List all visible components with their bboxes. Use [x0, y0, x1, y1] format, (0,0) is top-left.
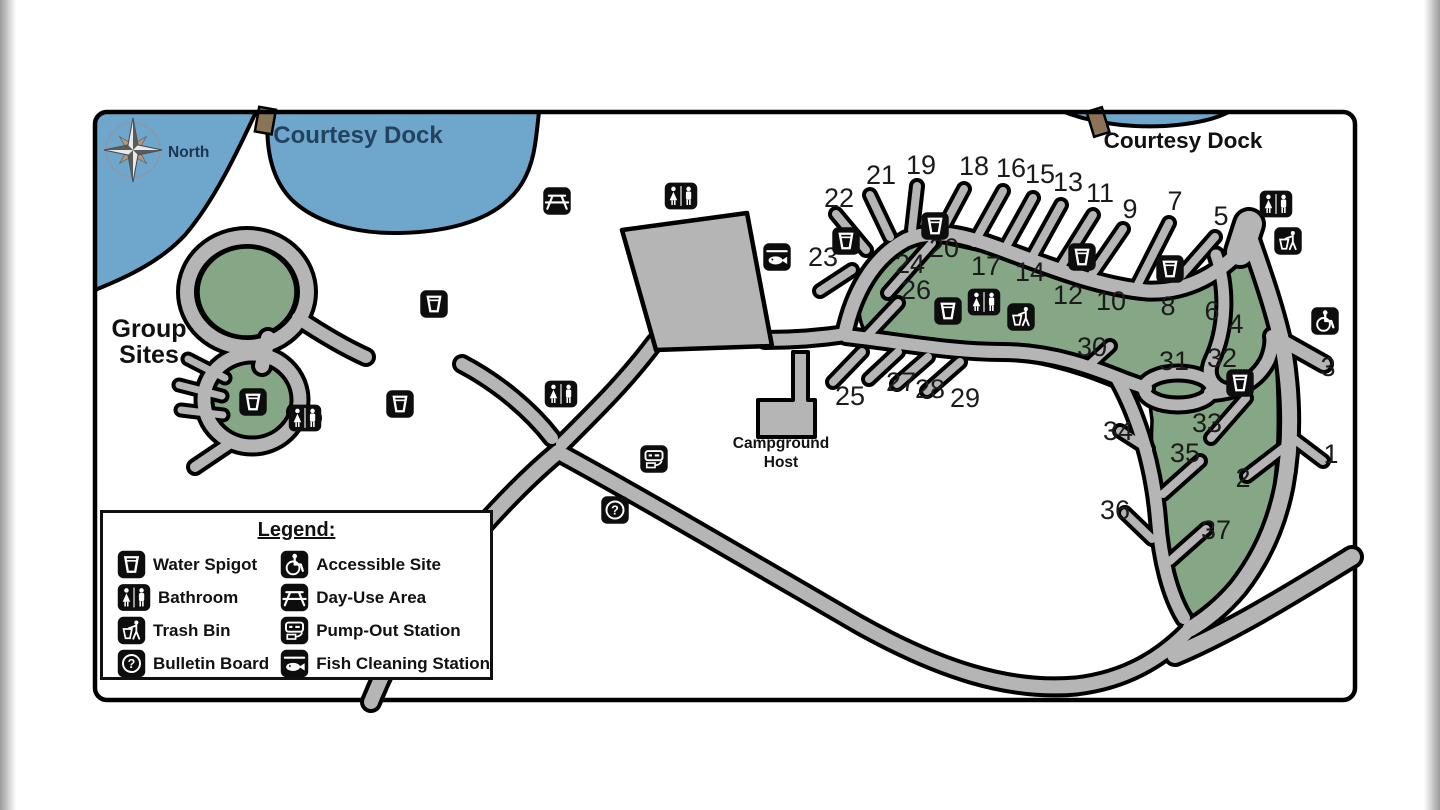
group-sites-label: Group Sites: [112, 315, 187, 369]
site-number-label: 19: [906, 150, 936, 180]
site-number-label: 10: [1096, 286, 1126, 316]
accessible-site-icon: [1311, 307, 1338, 334]
water-spigot-icon: [117, 550, 146, 579]
bathroom-icon: [117, 583, 151, 612]
site-number-label: 34: [1103, 416, 1133, 446]
courtesy-dock-left-label: Courtesy Dock: [273, 122, 443, 149]
site-number-label: 27: [886, 367, 916, 397]
site-number-label: 21: [866, 160, 896, 190]
trash-bin-icon: [1007, 303, 1034, 330]
site-number-label: 36: [1100, 495, 1130, 525]
legend-item-day-use-area: Day-Use Area: [280, 581, 490, 614]
bathroom-icon: [665, 183, 697, 210]
legend-item-accessible-site: Accessible Site: [280, 548, 490, 581]
accessible-site-icon: [280, 550, 309, 579]
site-number-label: 12: [1053, 280, 1083, 310]
legend-item-label: Bulletin Board: [153, 654, 269, 674]
bathroom-icon: [545, 381, 577, 408]
water-spigot-icon: [420, 290, 447, 317]
site-number-label: 37: [1201, 515, 1231, 545]
svg-text:Group: Group: [112, 315, 187, 343]
site-number-label: 9: [1122, 194, 1137, 224]
svg-text:Sites: Sites: [119, 341, 179, 369]
legend-item-label: Day-Use Area: [316, 588, 426, 608]
day-use-area-icon: [543, 187, 570, 214]
site-number-label: 15: [1025, 159, 1055, 189]
svg-text:Campground: Campground: [733, 435, 829, 452]
site-number-label: 13: [1053, 167, 1083, 197]
legend-item-label: Accessible Site: [316, 555, 441, 575]
site-number-label: 4: [1228, 309, 1243, 339]
legend-item-trash-bin: Trash Bin: [117, 614, 280, 647]
fish-cleaning-station-icon: [763, 243, 790, 270]
site-number-label: 5: [1213, 201, 1228, 231]
site-number-label: 7: [1167, 186, 1182, 216]
site-number-label: 25: [835, 381, 865, 411]
site-number-label: 35: [1170, 438, 1200, 468]
bathroom-icon: [1260, 191, 1292, 218]
bathroom-icon: [968, 289, 1000, 316]
bathroom-icon: [289, 405, 321, 432]
north-label: North: [168, 144, 209, 161]
legend-item-bulletin-board: Bulletin Board: [117, 647, 280, 680]
campground-map: ?: [0, 0, 1440, 810]
courtesy-dock-right-label: Courtesy Dock: [1104, 128, 1263, 153]
site-number-label: 18: [959, 151, 989, 181]
bulletin-board-icon: [601, 496, 628, 523]
site-number-label: 29: [950, 383, 980, 413]
water-spigot-icon: [1226, 369, 1253, 396]
site-number-label: 26: [901, 275, 931, 305]
campground-map-page: ?: [0, 0, 1440, 810]
site-number-label: 16: [996, 153, 1026, 183]
trash-bin-icon: [1274, 227, 1301, 254]
water-spigot-icon: [386, 390, 413, 417]
site-number-label: 11: [1086, 178, 1114, 208]
water-spigot-icon: [1156, 255, 1183, 282]
bulletin-board-icon: [117, 649, 146, 678]
site-number-label: 8: [1160, 291, 1175, 321]
site-number-label: 33: [1192, 408, 1222, 438]
legend-item-bathroom: Bathroom: [117, 581, 280, 614]
water-spigot-icon: [1068, 243, 1095, 270]
svg-text:Host: Host: [764, 454, 798, 471]
legend-item-pump-out-station: Pump-Out Station: [280, 614, 490, 647]
legend-title: Legend:: [103, 519, 490, 542]
site-number-label: 1: [1323, 439, 1338, 469]
water-spigot-icon: [921, 212, 948, 239]
water-spigot-icon: [934, 297, 961, 324]
fish-cleaning-station-icon: [280, 649, 309, 678]
site-number-label: 32: [1207, 343, 1237, 373]
day-use-area-icon: [280, 583, 309, 612]
site-number-label: 22: [824, 183, 854, 213]
legend-item-label: Water Spigot: [153, 555, 257, 575]
trash-bin-icon: [117, 616, 146, 645]
site-number-label: 28: [915, 374, 945, 404]
legend-panel: Legend: Water SpigotBathroomTrash BinBul…: [100, 510, 493, 680]
pump-out-station-icon: [640, 445, 667, 472]
site-number-label: 31: [1159, 346, 1189, 376]
water-spigot-icon: [832, 227, 859, 254]
legend-item-label: Trash Bin: [153, 621, 230, 641]
legend-item-fish-cleaning-station: Fish Cleaning Station: [280, 647, 490, 680]
legend-item-label: Pump-Out Station: [316, 621, 460, 641]
water-spigot-icon: [239, 388, 266, 415]
site-number-label: 14: [1015, 257, 1045, 287]
site-number-label: 30: [1077, 332, 1107, 362]
legend-item-label: Fish Cleaning Station: [316, 654, 490, 674]
legend-item-water-spigot: Water Spigot: [117, 548, 280, 581]
site-number-label: 17: [971, 251, 1001, 281]
pump-out-station-icon: [280, 616, 309, 645]
site-number-label: 6: [1204, 296, 1219, 326]
site-number-label: 2: [1235, 463, 1250, 493]
site-number-label: 3: [1320, 352, 1335, 382]
legend-item-label: Bathroom: [158, 588, 238, 608]
